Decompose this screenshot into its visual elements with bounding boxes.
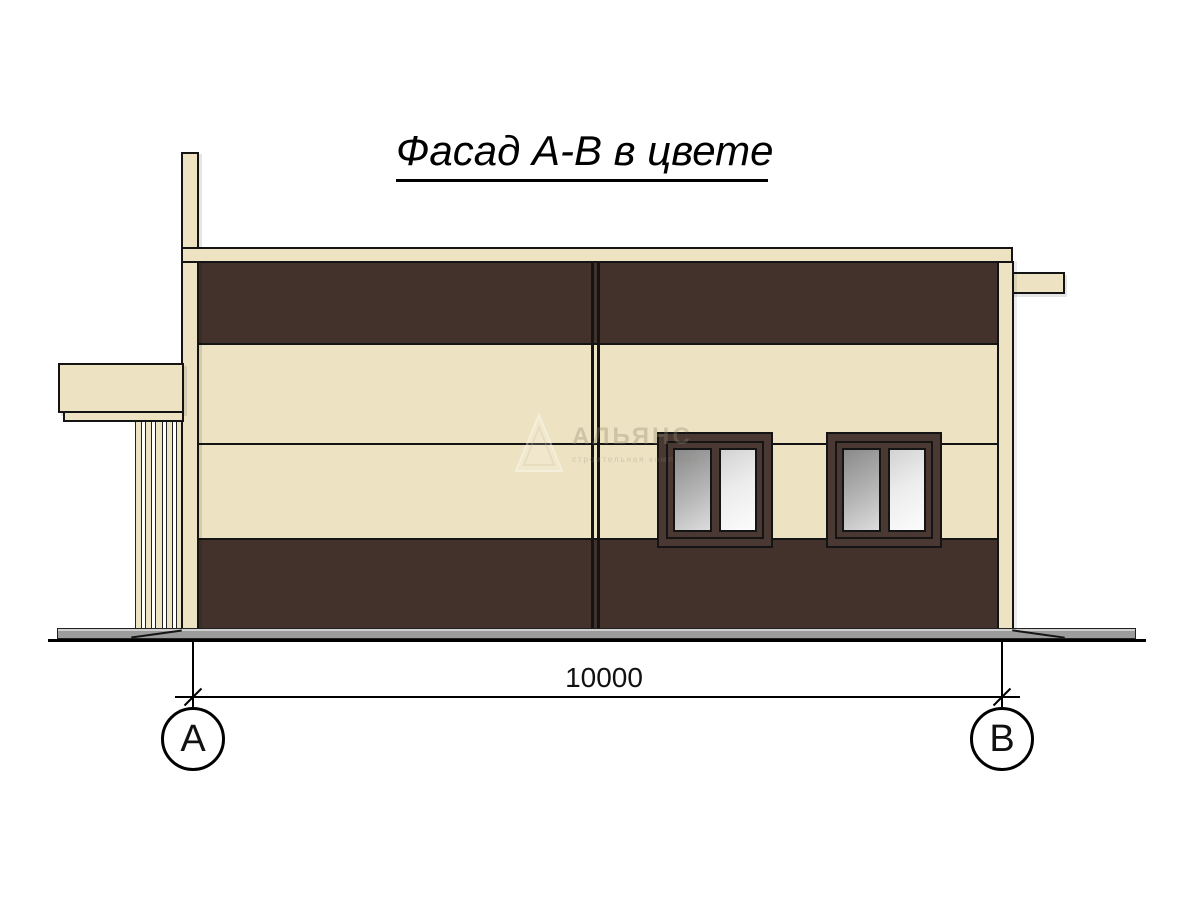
window-1 (657, 432, 773, 548)
wall-seam-line-left (591, 263, 594, 628)
canopy-fascia (63, 411, 184, 422)
window-2-pane-left (842, 448, 881, 532)
axis-label-b: В (989, 718, 1014, 761)
window-2-pane-right (888, 448, 927, 532)
slat (145, 421, 152, 629)
drawing-title: Фасад А-В в цвете (396, 127, 768, 182)
wall-seam-line-right (597, 263, 600, 628)
slat (166, 421, 173, 629)
protruding-beam (1012, 272, 1065, 294)
roof-fascia-band (181, 247, 1013, 263)
ground-line (48, 639, 1146, 642)
slat (155, 421, 162, 629)
ground-plinth-strip (57, 628, 1136, 639)
window-2-sash (835, 441, 933, 539)
canopy-roof (58, 363, 184, 413)
dimension-line (175, 696, 1020, 698)
slatted-screen (135, 421, 183, 629)
window-2 (826, 432, 942, 548)
slat (135, 421, 142, 629)
axis-label-a: А (180, 718, 205, 761)
right-corner-post (997, 261, 1014, 630)
facade-drawing: Фасад А-В в цвете (0, 0, 1200, 900)
window-1-pane-right (719, 448, 758, 532)
window-1-sash (666, 441, 764, 539)
axis-marker-b: В (970, 707, 1034, 771)
axis-marker-a: А (161, 707, 225, 771)
dimension-value: 10000 (504, 662, 704, 694)
window-1-pane-left (673, 448, 712, 532)
